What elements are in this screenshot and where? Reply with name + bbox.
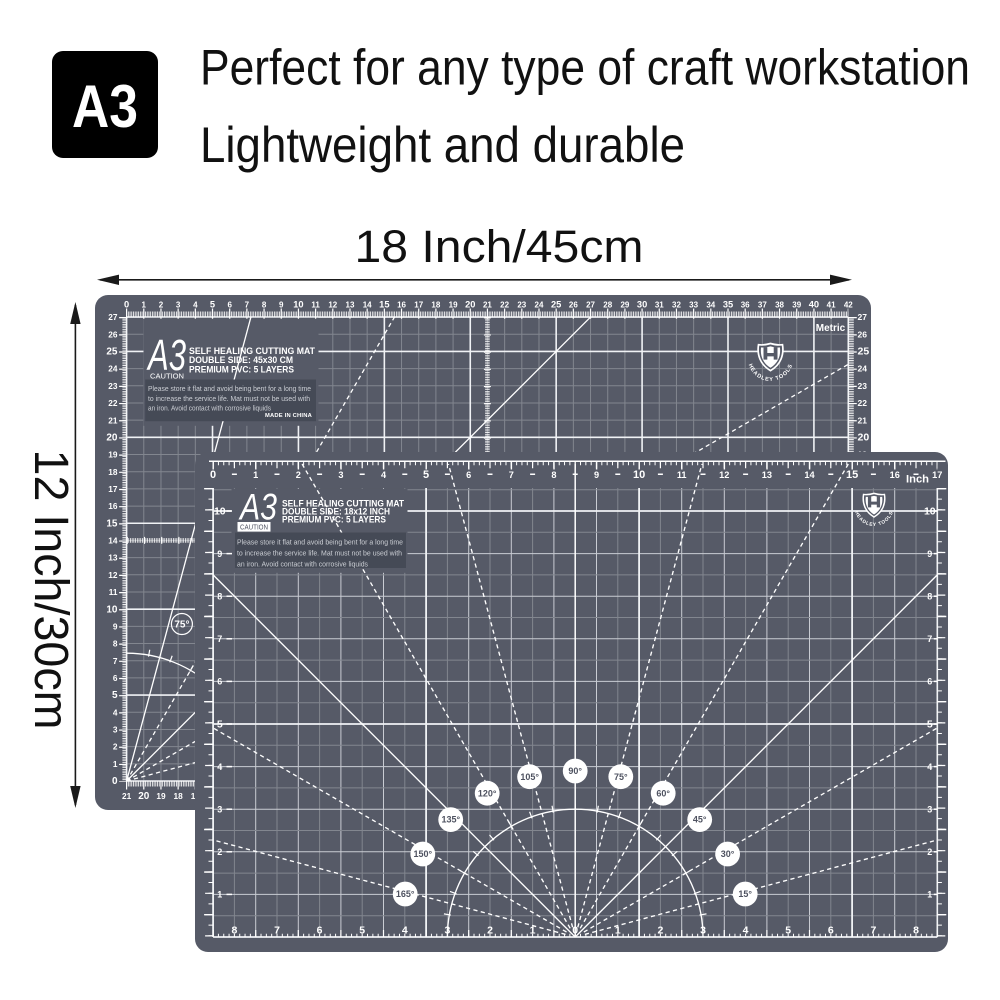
svg-text:8: 8	[913, 925, 919, 937]
svg-text:11: 11	[311, 301, 320, 310]
svg-text:4: 4	[402, 925, 408, 937]
svg-text:Lightweight and durable: Lightweight and durable	[200, 117, 685, 173]
svg-text:0: 0	[124, 300, 129, 310]
svg-text:24: 24	[858, 364, 868, 374]
svg-text:21: 21	[483, 301, 492, 310]
svg-text:7: 7	[509, 470, 514, 480]
svg-text:10: 10	[106, 604, 118, 615]
svg-text:MADE IN CHINA: MADE IN CHINA	[265, 413, 313, 419]
svg-text:13: 13	[108, 553, 118, 563]
svg-text:CAUTION: CAUTION	[150, 372, 184, 381]
svg-text:15: 15	[106, 518, 118, 529]
svg-text:2: 2	[657, 925, 663, 937]
svg-text:21: 21	[108, 415, 118, 425]
svg-text:10: 10	[293, 300, 303, 310]
svg-text:5: 5	[217, 718, 223, 730]
svg-text:120°: 120°	[478, 788, 497, 798]
svg-text:16: 16	[108, 501, 118, 511]
svg-text:150°: 150°	[413, 849, 432, 859]
svg-text:34: 34	[706, 301, 715, 310]
svg-text:PREMIUM PVC: 5 LAYERS: PREMIUM PVC: 5 LAYERS	[282, 515, 386, 525]
svg-text:30: 30	[637, 300, 647, 310]
svg-text:40: 40	[809, 300, 819, 310]
svg-text:13: 13	[346, 301, 355, 310]
svg-text:14: 14	[363, 301, 372, 310]
svg-text:Please store it flat and avoid: Please store it flat and avoid being ben…	[148, 386, 311, 393]
svg-text:9: 9	[279, 301, 284, 310]
svg-text:2: 2	[296, 470, 301, 480]
svg-text:8: 8	[113, 639, 118, 649]
svg-text:7: 7	[113, 656, 118, 666]
svg-text:135°: 135°	[441, 815, 460, 825]
svg-text:26: 26	[569, 301, 578, 310]
svg-text:24: 24	[108, 364, 118, 374]
svg-text:A3: A3	[72, 73, 138, 140]
svg-text:to increase the service life.: to increase the service life. Mat must n…	[237, 551, 402, 558]
svg-text:12: 12	[719, 470, 729, 480]
svg-text:5: 5	[112, 690, 118, 701]
svg-text:18: 18	[108, 467, 118, 477]
svg-text:3: 3	[927, 805, 932, 815]
svg-text:2: 2	[487, 925, 493, 937]
svg-text:27: 27	[108, 312, 118, 322]
svg-text:7: 7	[870, 925, 876, 937]
svg-text:27: 27	[586, 301, 595, 310]
svg-text:14: 14	[108, 536, 118, 546]
svg-text:4: 4	[743, 925, 749, 937]
svg-text:18: 18	[174, 791, 184, 801]
svg-text:27: 27	[858, 312, 868, 322]
svg-text:12 Inch/30cm: 12 Inch/30cm	[24, 450, 77, 730]
svg-text:2: 2	[159, 301, 164, 310]
svg-text:31: 31	[655, 301, 664, 310]
svg-text:21: 21	[122, 791, 132, 801]
svg-text:8: 8	[217, 592, 222, 602]
svg-text:90°: 90°	[568, 766, 582, 776]
svg-text:23: 23	[108, 381, 118, 391]
svg-text:19: 19	[108, 450, 118, 460]
svg-text:39: 39	[792, 301, 801, 310]
svg-text:6: 6	[927, 677, 932, 687]
svg-text:6: 6	[828, 925, 834, 937]
svg-text:28: 28	[603, 301, 612, 310]
svg-text:33: 33	[689, 301, 698, 310]
svg-text:15: 15	[846, 469, 858, 481]
svg-text:16: 16	[890, 470, 900, 480]
svg-text:21: 21	[858, 415, 868, 425]
svg-text:16: 16	[397, 301, 406, 310]
svg-text:35: 35	[723, 300, 733, 310]
svg-text:7: 7	[927, 634, 932, 644]
svg-text:30°: 30°	[721, 849, 735, 859]
svg-text:3: 3	[338, 470, 343, 480]
svg-text:165°: 165°	[396, 889, 415, 899]
svg-text:24: 24	[535, 301, 544, 310]
svg-text:an iron. Avoid contact with co: an iron. Avoid contact with corrosive li…	[237, 562, 368, 569]
svg-text:0: 0	[210, 469, 216, 481]
svg-text:20: 20	[138, 791, 150, 802]
svg-text:6: 6	[466, 470, 471, 480]
svg-text:5: 5	[785, 925, 791, 937]
svg-text:4: 4	[113, 707, 118, 717]
svg-text:20: 20	[465, 300, 475, 310]
svg-text:37: 37	[758, 301, 767, 310]
svg-text:4: 4	[217, 762, 222, 772]
svg-text:10: 10	[214, 505, 226, 517]
svg-text:1: 1	[253, 470, 258, 480]
svg-text:10: 10	[633, 469, 645, 481]
svg-text:to increase the service life.: to increase the service life. Mat must n…	[148, 396, 310, 403]
svg-text:11: 11	[677, 470, 687, 480]
svg-text:23: 23	[517, 301, 526, 310]
svg-text:PREMIUM PVC: 5 LAYERS: PREMIUM PVC: 5 LAYERS	[189, 364, 294, 374]
svg-text:1: 1	[113, 759, 118, 769]
svg-text:42: 42	[844, 301, 853, 310]
svg-text:18: 18	[431, 301, 440, 310]
svg-text:41: 41	[827, 301, 836, 310]
svg-text:18 Inch/45cm: 18 Inch/45cm	[355, 221, 644, 272]
svg-text:60°: 60°	[656, 788, 670, 798]
svg-text:9: 9	[113, 621, 118, 631]
svg-text:13: 13	[762, 470, 772, 480]
svg-text:9: 9	[594, 470, 599, 480]
svg-text:2: 2	[217, 847, 222, 857]
svg-text:17: 17	[108, 484, 118, 494]
svg-text:11: 11	[109, 587, 118, 597]
svg-text:15: 15	[379, 300, 389, 310]
svg-text:75°: 75°	[174, 619, 189, 630]
svg-text:12: 12	[328, 301, 337, 310]
svg-text:7: 7	[245, 301, 250, 310]
svg-text:Please store it flat and avoid: Please store it flat and avoid being ben…	[237, 540, 403, 547]
svg-text:6: 6	[317, 925, 323, 937]
svg-text:Perfect for any type of craft: Perfect for any type of craft workstatio…	[200, 40, 970, 96]
svg-text:26: 26	[858, 329, 868, 339]
svg-text:15°: 15°	[738, 889, 752, 899]
svg-text:3: 3	[217, 805, 222, 815]
svg-text:6: 6	[227, 301, 232, 310]
svg-text:26: 26	[108, 329, 118, 339]
svg-text:14: 14	[804, 470, 815, 480]
svg-text:7: 7	[217, 634, 222, 644]
svg-text:8: 8	[927, 592, 932, 602]
svg-text:22: 22	[500, 301, 509, 310]
svg-text:4: 4	[381, 470, 387, 480]
svg-text:20: 20	[106, 432, 118, 443]
svg-text:38: 38	[775, 301, 784, 310]
svg-text:0: 0	[112, 776, 118, 787]
svg-text:19: 19	[449, 301, 458, 310]
svg-text:1: 1	[927, 890, 932, 900]
svg-text:Metric: Metric	[816, 323, 846, 334]
svg-text:29: 29	[620, 301, 629, 310]
svg-text:CAUTION: CAUTION	[240, 522, 268, 531]
svg-text:25: 25	[551, 300, 561, 310]
svg-text:1: 1	[217, 890, 222, 900]
svg-text:25: 25	[858, 346, 870, 358]
svg-text:5: 5	[423, 469, 429, 481]
svg-text:22: 22	[108, 398, 118, 408]
svg-text:75°: 75°	[614, 772, 628, 782]
svg-text:4: 4	[927, 762, 932, 772]
svg-text:4: 4	[193, 301, 198, 310]
svg-text:36: 36	[741, 301, 750, 310]
svg-text:17: 17	[414, 301, 423, 310]
svg-text:8: 8	[551, 470, 556, 480]
svg-text:9: 9	[927, 549, 932, 559]
svg-text:8: 8	[262, 301, 267, 310]
svg-text:25: 25	[106, 347, 118, 358]
svg-text:8: 8	[231, 925, 237, 937]
svg-text:1: 1	[142, 301, 147, 310]
svg-text:19: 19	[156, 791, 166, 801]
svg-text:6: 6	[113, 673, 118, 683]
svg-text:5: 5	[359, 925, 365, 937]
svg-text:2: 2	[927, 847, 932, 857]
svg-text:6: 6	[217, 677, 222, 687]
svg-text:23: 23	[858, 381, 868, 391]
svg-text:17: 17	[932, 470, 942, 480]
svg-text:45°: 45°	[693, 815, 707, 825]
svg-text:Inch: Inch	[906, 474, 929, 486]
svg-text:9: 9	[217, 549, 222, 559]
svg-text:7: 7	[274, 925, 280, 937]
svg-text:20: 20	[858, 431, 870, 443]
svg-text:105°: 105°	[520, 772, 539, 782]
svg-text:5: 5	[927, 718, 933, 730]
svg-text:an iron. Avoid contact with co: an iron. Avoid contact with corrosive li…	[148, 405, 271, 412]
svg-text:3: 3	[113, 725, 118, 735]
svg-text:2: 2	[113, 742, 118, 752]
svg-text:12: 12	[108, 570, 118, 580]
svg-text:32: 32	[672, 301, 681, 310]
svg-text:5: 5	[210, 300, 215, 310]
svg-text:3: 3	[176, 301, 181, 310]
svg-text:22: 22	[858, 398, 868, 408]
